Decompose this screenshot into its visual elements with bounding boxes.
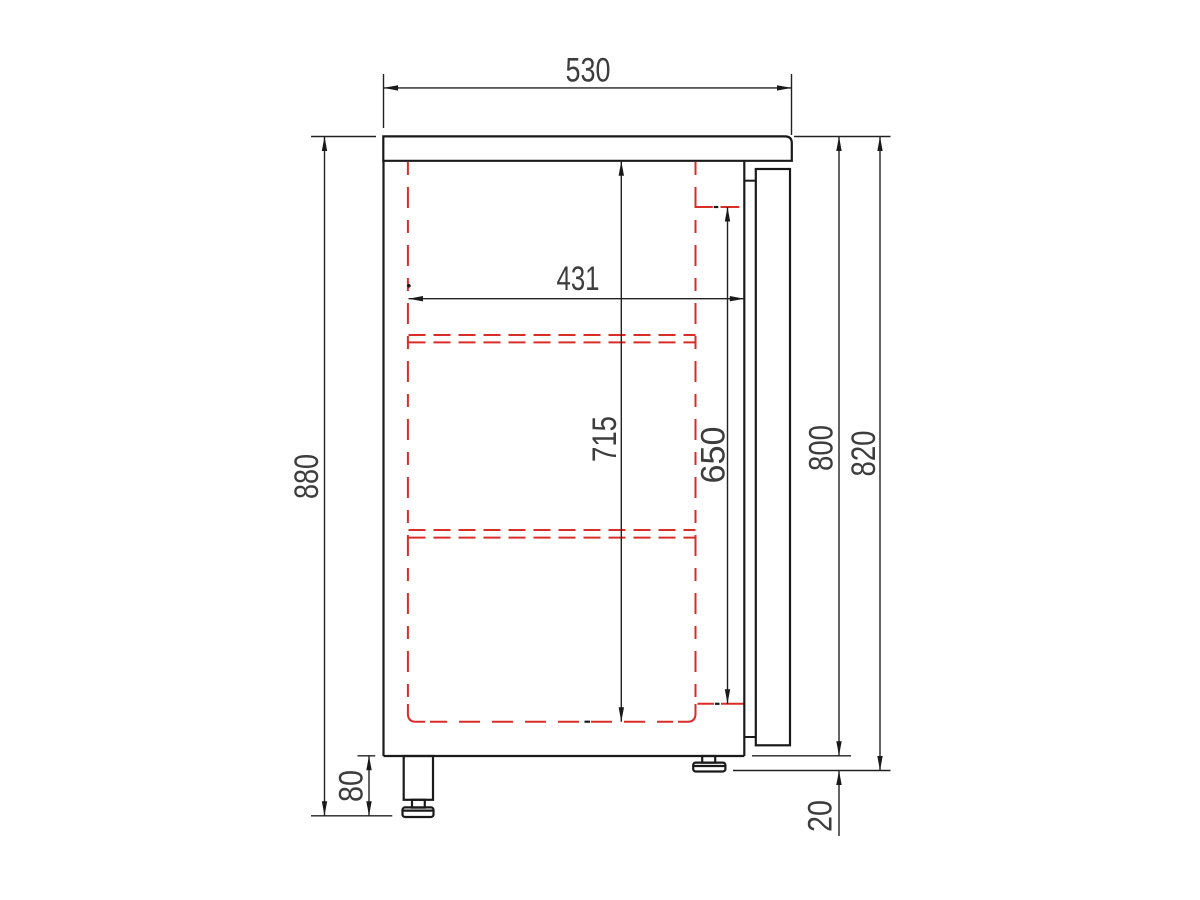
svg-text:20: 20 (802, 800, 840, 832)
svg-text:530: 530 (566, 52, 611, 90)
svg-text:80: 80 (332, 770, 370, 802)
svg-text:715: 715 (586, 416, 624, 462)
svg-text:650: 650 (695, 427, 733, 484)
svg-text:431: 431 (557, 260, 600, 298)
svg-text:820: 820 (845, 431, 883, 477)
svg-text:880: 880 (288, 454, 326, 499)
svg-text:800: 800 (803, 425, 841, 471)
